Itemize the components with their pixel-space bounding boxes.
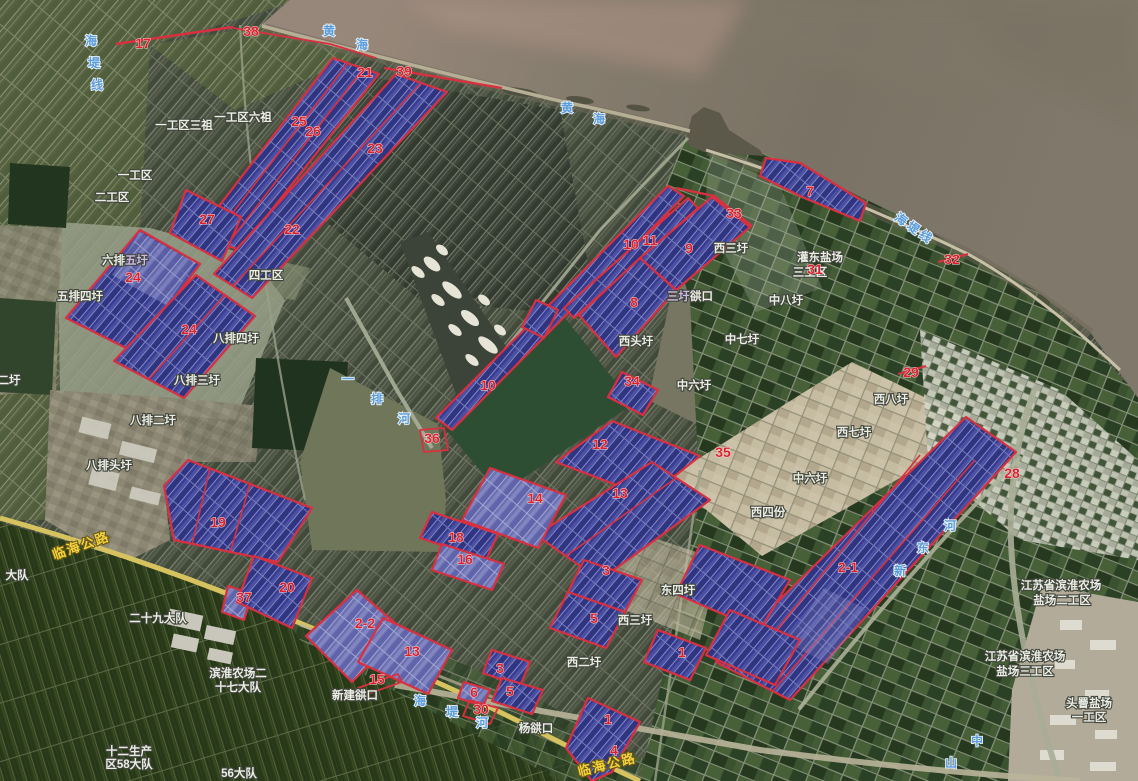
svg-text:江苏省滨淮农场: 江苏省滨淮农场: [1021, 578, 1102, 592]
svg-text:9: 9: [685, 240, 693, 256]
svg-text:堤: 堤: [88, 55, 101, 70]
svg-text:三圩谼口: 三圩谼口: [667, 289, 713, 303]
svg-text:38: 38: [243, 23, 259, 39]
svg-text:10: 10: [623, 236, 639, 252]
svg-text:二圩: 二圩: [0, 374, 21, 387]
svg-text:24: 24: [125, 269, 141, 285]
svg-text:二工区: 二工区: [95, 191, 130, 204]
svg-text:5: 5: [590, 610, 598, 626]
svg-text:39: 39: [396, 63, 412, 79]
svg-text:23: 23: [367, 140, 383, 156]
svg-text:盐场三工区: 盐场三工区: [996, 664, 1054, 678]
svg-text:黄: 黄: [323, 23, 335, 38]
svg-text:一: 一: [342, 372, 354, 386]
svg-text:20: 20: [279, 579, 295, 595]
svg-text:东: 东: [917, 540, 929, 555]
svg-text:6: 6: [470, 684, 478, 700]
svg-text:8: 8: [630, 294, 638, 310]
svg-text:新建谼口: 新建谼口: [332, 688, 378, 702]
svg-text:十七大队: 十七大队: [215, 680, 261, 694]
svg-text:二十九大队: 二十九大队: [129, 611, 187, 625]
svg-text:32: 32: [944, 251, 960, 267]
svg-text:山: 山: [945, 755, 957, 770]
svg-text:西四份: 西四份: [751, 505, 786, 519]
svg-text:西三圩: 西三圩: [714, 242, 749, 255]
svg-text:新: 新: [894, 563, 906, 578]
svg-text:海: 海: [85, 33, 97, 48]
svg-text:26: 26: [305, 123, 321, 139]
svg-text:排: 排: [371, 391, 383, 406]
svg-text:中六圩: 中六圩: [677, 378, 712, 392]
svg-text:21: 21: [357, 64, 373, 80]
svg-text:28: 28: [1004, 465, 1020, 481]
svg-text:八排头圩: 八排头圩: [85, 458, 132, 472]
svg-text:10: 10: [480, 377, 496, 393]
svg-text:西三圩: 西三圩: [618, 614, 653, 627]
svg-text:六排五圩: 六排五圩: [102, 253, 148, 267]
svg-text:大队: 大队: [6, 568, 29, 582]
svg-text:一工区三祖: 一工区三祖: [155, 118, 213, 132]
svg-text:中: 中: [971, 733, 983, 748]
svg-text:17: 17: [135, 35, 151, 51]
svg-text:18: 18: [448, 529, 464, 545]
svg-text:一工区六祖: 一工区六祖: [214, 110, 272, 124]
svg-text:36: 36: [424, 430, 440, 446]
svg-text:3: 3: [602, 562, 610, 578]
svg-text:堤: 堤: [446, 704, 459, 719]
svg-text:3: 3: [496, 660, 504, 676]
svg-text:十二生产: 十二生产: [106, 744, 152, 758]
svg-text:24: 24: [181, 321, 197, 337]
svg-text:中七圩: 中七圩: [725, 332, 760, 346]
svg-text:7: 7: [806, 183, 814, 199]
svg-text:1: 1: [604, 711, 612, 727]
svg-text:西二圩: 西二圩: [567, 656, 602, 669]
svg-text:杨谼口: 杨谼口: [519, 721, 554, 735]
svg-text:中六圩: 中六圩: [793, 471, 828, 485]
svg-text:八排三圩: 八排三圩: [173, 373, 220, 387]
svg-text:2-1: 2-1: [838, 559, 858, 575]
svg-text:22: 22: [284, 221, 300, 237]
svg-text:34: 34: [624, 373, 640, 389]
svg-text:1: 1: [678, 644, 686, 660]
svg-text:盐场二工区: 盐场二工区: [1033, 593, 1091, 607]
svg-text:五排四圩: 五排四圩: [57, 289, 103, 303]
svg-text:八排四圩: 八排四圩: [212, 331, 259, 345]
svg-text:5: 5: [506, 683, 514, 699]
svg-text:33: 33: [726, 205, 742, 221]
svg-text:12: 12: [592, 436, 608, 452]
svg-text:海: 海: [356, 37, 368, 52]
svg-text:黄: 黄: [561, 100, 573, 115]
svg-text:13: 13: [612, 485, 628, 501]
svg-text:13: 13: [404, 643, 420, 659]
svg-text:线: 线: [91, 77, 103, 92]
svg-text:56大队: 56大队: [221, 766, 257, 780]
svg-text:海: 海: [593, 111, 605, 126]
svg-text:11: 11: [643, 232, 658, 248]
svg-text:15: 15: [369, 671, 385, 687]
svg-text:29: 29: [903, 364, 919, 380]
svg-text:30: 30: [473, 701, 489, 717]
svg-text:河: 河: [397, 411, 410, 426]
svg-text:河: 河: [475, 715, 488, 730]
svg-text:四工区: 四工区: [249, 269, 284, 282]
svg-text:中八圩: 中八圩: [769, 293, 804, 307]
svg-text:东四圩: 东四圩: [661, 583, 696, 597]
svg-text:一工区: 一工区: [1072, 711, 1107, 724]
svg-text:河: 河: [943, 518, 956, 533]
svg-text:一工区: 一工区: [118, 169, 153, 182]
svg-text:八排二圩: 八排二圩: [129, 413, 176, 427]
svg-text:35: 35: [715, 444, 731, 460]
svg-text:31: 31: [807, 261, 823, 277]
svg-text:海: 海: [414, 693, 426, 708]
svg-text:19: 19: [210, 514, 226, 530]
svg-text:西头圩: 西头圩: [619, 334, 654, 348]
svg-text:2-2: 2-2: [355, 615, 375, 631]
svg-text:江苏省滨淮农场: 江苏省滨淮农场: [985, 649, 1066, 663]
svg-text:4: 4: [610, 742, 618, 758]
svg-text:区58大队: 区58大队: [105, 757, 153, 771]
svg-text:滨淮农场二: 滨淮农场二: [209, 666, 267, 680]
svg-text:16: 16: [457, 551, 473, 567]
svg-text:头罾盐场: 头罾盐场: [1066, 696, 1112, 710]
svg-text:37: 37: [236, 589, 252, 605]
svg-text:14: 14: [527, 490, 543, 506]
svg-text:27: 27: [199, 211, 215, 227]
svg-text:西八圩: 西八圩: [874, 393, 909, 406]
svg-text:西七圩: 西七圩: [837, 425, 872, 439]
